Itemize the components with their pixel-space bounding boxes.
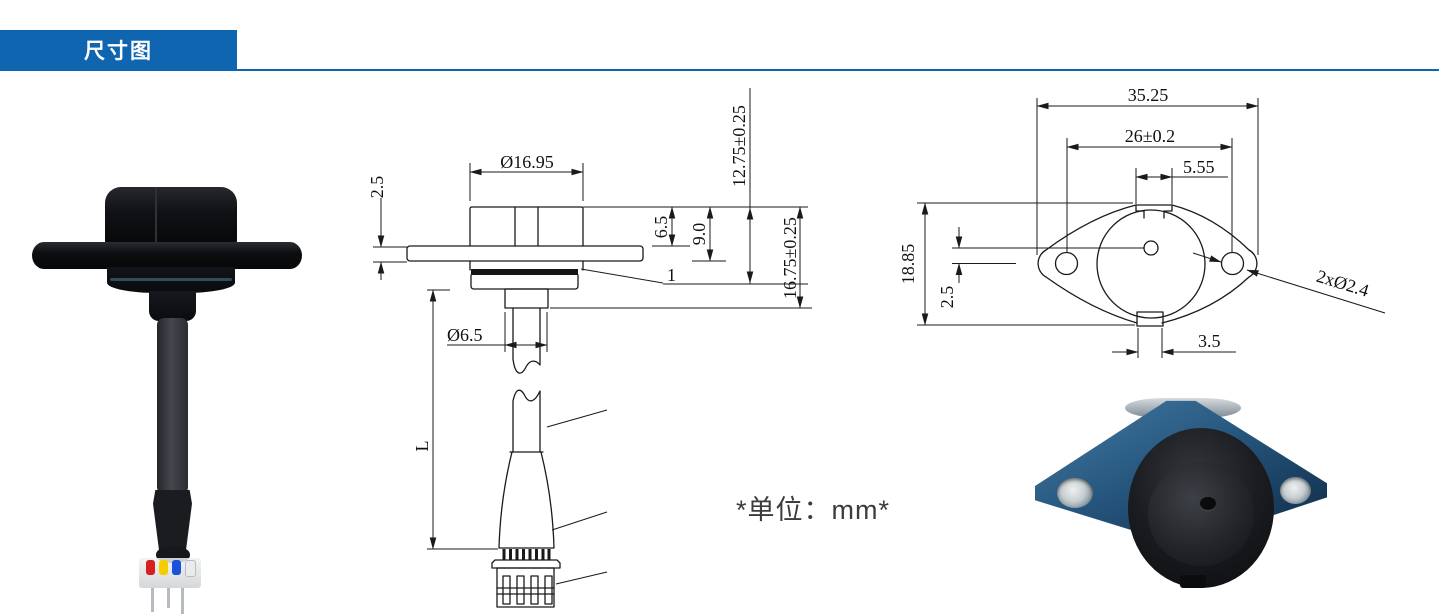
- dim-cap-diameter: Ø16.95: [500, 152, 554, 172]
- photo-center-dot: [1200, 497, 1216, 510]
- photo-mount-hole-left: [1057, 478, 1093, 508]
- connector-flange: [492, 560, 560, 568]
- photo-sensor-face: [1148, 462, 1254, 566]
- section-title: 尺寸图: [84, 35, 153, 65]
- dim-height-to-locknut: 12.75±0.25: [729, 105, 749, 187]
- dimension-diagram-page: 尺寸图: [0, 0, 1439, 614]
- dim-center-hole-offset: 2.5: [937, 286, 957, 309]
- photo-strain-relief: [153, 490, 192, 552]
- product-photo-side: [0, 160, 340, 614]
- top-view-outline: [952, 205, 1257, 326]
- photo-hub: [149, 291, 196, 321]
- photo-wire-yellow: [159, 560, 168, 575]
- product-photo-perspective: [1030, 392, 1340, 597]
- strain-relief-outline: [499, 452, 554, 548]
- dim-head-height: 9.0: [689, 223, 709, 246]
- gasket: [471, 269, 578, 275]
- dim-hole-spacing: 26±0.2: [1125, 126, 1175, 146]
- dim-cap-height: 6.5: [651, 216, 671, 239]
- callout-gasket: 1: [667, 265, 676, 285]
- connector-pins: [503, 576, 552, 604]
- photo-wire-red: [146, 560, 155, 575]
- dim-height-overall: 16.75±0.25: [780, 217, 800, 299]
- dim-flange-thickness: 2.5: [367, 176, 387, 199]
- photo-wire-blue: [172, 560, 181, 575]
- dim-flange-height: 18.85: [898, 244, 918, 285]
- mount-hole-right: [1222, 253, 1244, 275]
- photo-connector-pin: [151, 588, 154, 612]
- photo-connector-pin: [181, 588, 184, 614]
- boot-ribs: [504, 549, 549, 560]
- leader-lines: [547, 410, 607, 584]
- body-circle: [1097, 210, 1205, 318]
- dim-overall-width: 35.25: [1128, 85, 1169, 105]
- dim-top-notch-width: 5.55: [1183, 157, 1215, 177]
- center-hole: [1144, 241, 1158, 255]
- photo-mount-hole-right: [1280, 477, 1311, 504]
- top-view-drawing: 35.25 26±0.2 5.55 18.85 2.5: [895, 80, 1395, 370]
- side-view-dimensions: Ø16.95 2.5 6.5 9.0 12.75±0.25: [367, 88, 812, 549]
- dim-bottom-notch-width: 3.5: [1198, 331, 1221, 351]
- mount-hole-left: [1056, 253, 1078, 275]
- side-view-outline: [407, 207, 643, 607]
- section-header-bar: 尺寸图: [0, 30, 237, 70]
- photo-wire-white: [185, 560, 196, 577]
- photo-cap: [105, 187, 237, 245]
- dim-stem-diameter: Ø6.5: [447, 325, 483, 345]
- photo-connector-pin: [167, 588, 170, 608]
- photo-cable: [157, 318, 188, 494]
- flange-outline: [407, 246, 643, 261]
- bottom-key-notch: [1137, 312, 1163, 326]
- units-note: *单位：mm*: [736, 488, 890, 527]
- top-key-notch: [1136, 205, 1172, 218]
- flange-oval-outline: [1038, 205, 1257, 323]
- dim-cable-length: L: [412, 441, 432, 452]
- dim-mounting-holes: 2xØ2.4: [1314, 266, 1371, 301]
- boss-outline: [505, 289, 548, 308]
- section-header-underline: [0, 69, 1439, 71]
- photo-seal-groove: [110, 278, 232, 281]
- photo-flange: [32, 242, 302, 269]
- side-view-drawing: Ø16.95 2.5 6.5 9.0 12.75±0.25: [360, 80, 820, 614]
- photo-key-notch: [1180, 575, 1206, 588]
